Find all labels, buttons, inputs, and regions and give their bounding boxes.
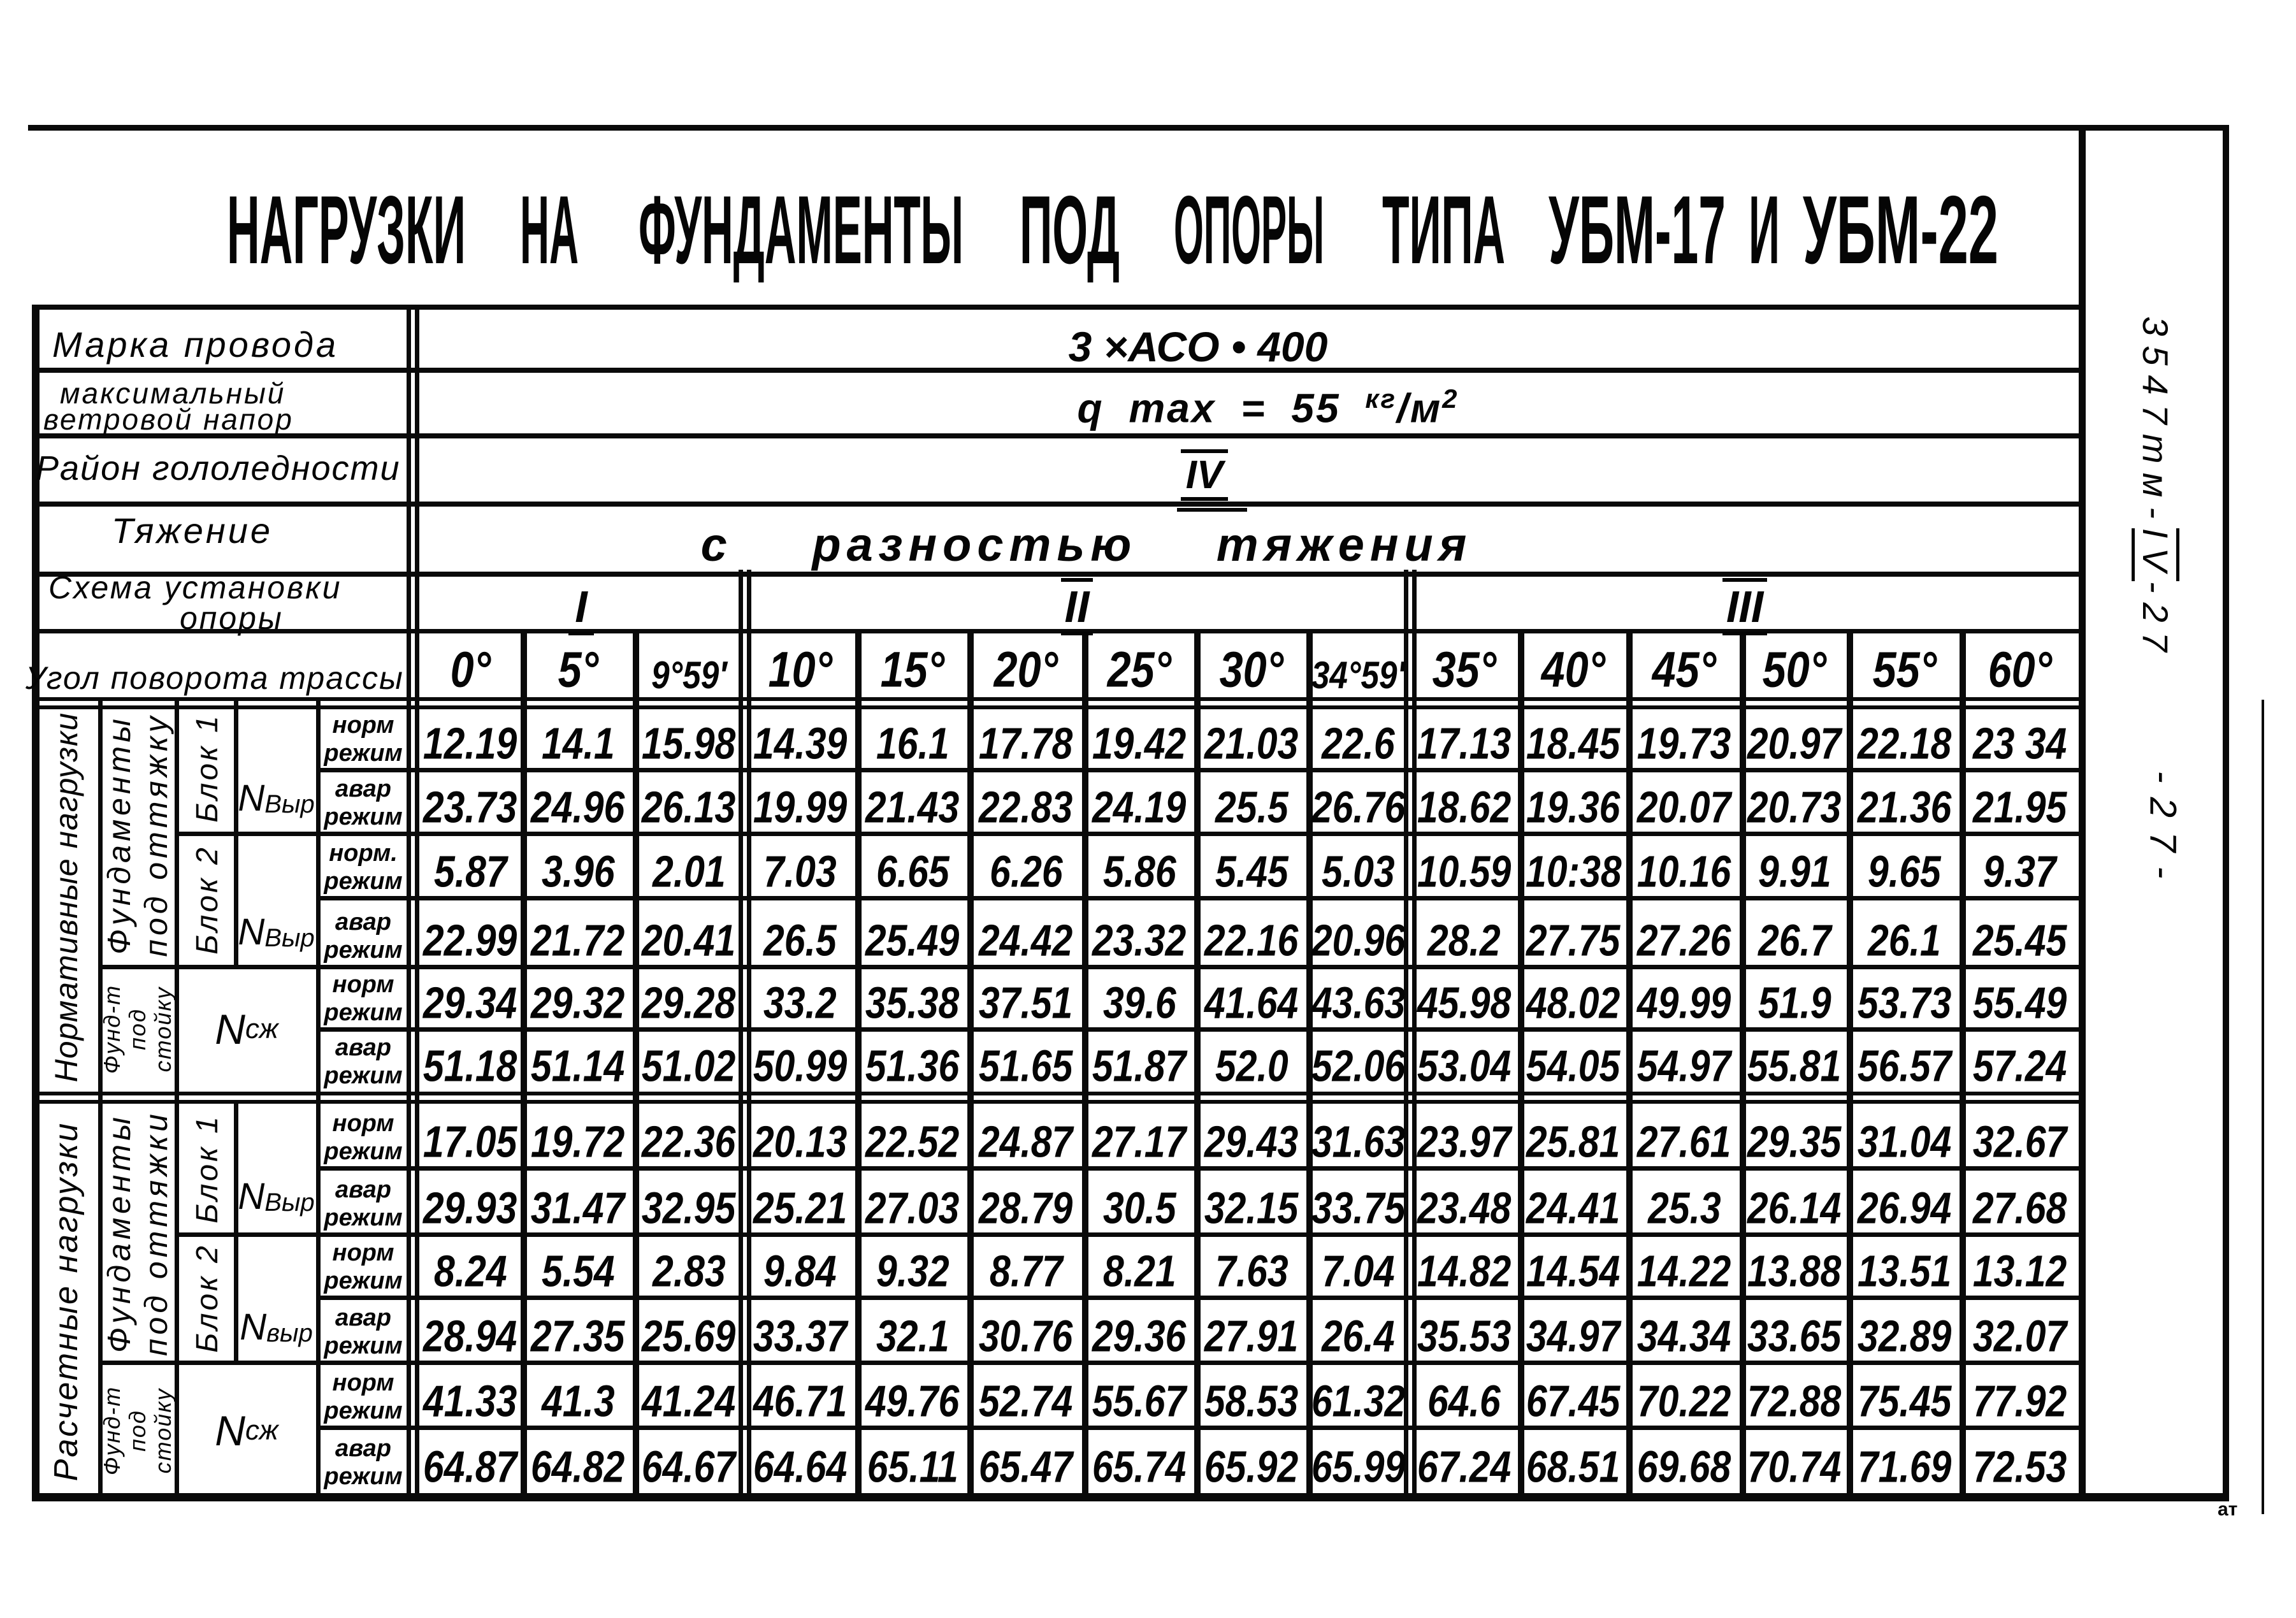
svg-text:УБМ-22: УБМ-22 <box>1803 176 1998 284</box>
svg-text:И: И <box>1749 176 1780 284</box>
svg-text:ПОД: ПОД <box>1020 176 1120 284</box>
svg-text:ТИПА: ТИПА <box>1382 176 1505 284</box>
svg-text:ФУНДАМЕНТЫ: ФУНДАМЕНТЫ <box>639 176 964 284</box>
svg-text:УБМ-17: УБМ-17 <box>1549 176 1726 284</box>
svg-text:ОПОРЫ: ОПОРЫ <box>1174 176 1324 284</box>
svg-text:НА: НА <box>520 176 579 284</box>
svg-text:НАГРУЗКИ: НАГРУЗКИ <box>227 176 466 284</box>
